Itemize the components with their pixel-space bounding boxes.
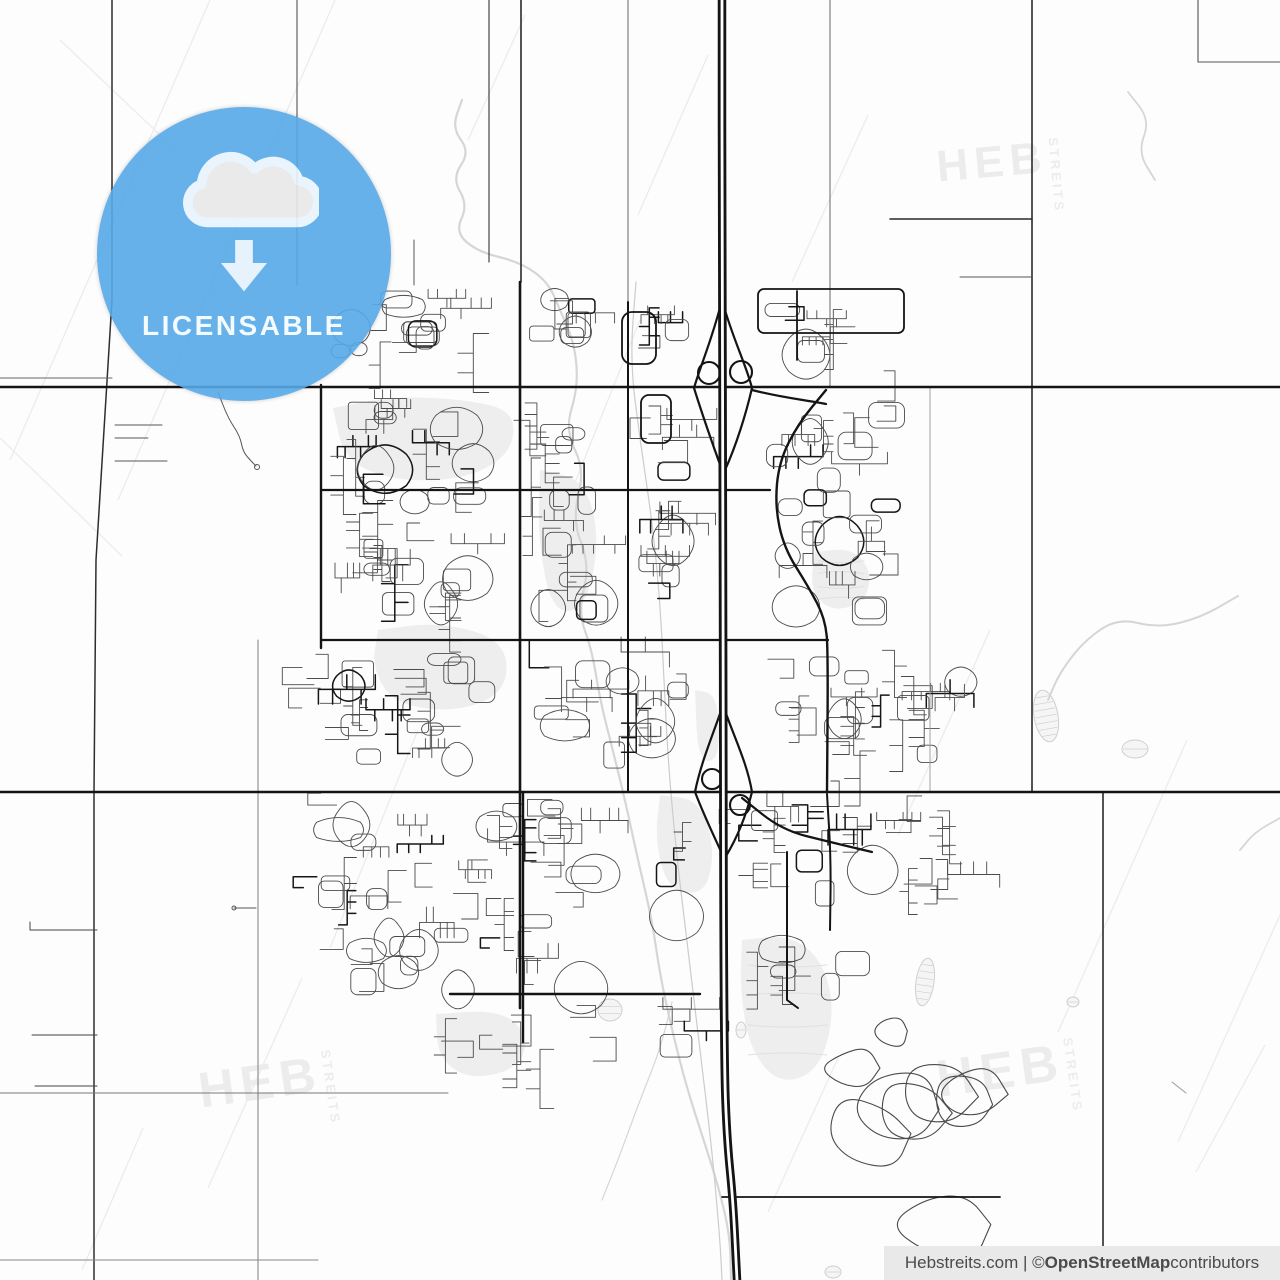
ponds-layer	[598, 688, 1148, 1278]
parks-layer	[333, 398, 869, 1080]
cloud-icon	[188, 157, 318, 223]
attribution-suffix: contributors	[1170, 1253, 1259, 1273]
licensable-badge[interactable]: LICENSABLE	[97, 107, 391, 401]
attribution-bar: Hebstreits.com | © OpenStreetMap contrib…	[884, 1246, 1280, 1280]
badge-label: LICENSABLE	[97, 310, 391, 342]
attribution-source: Hebstreits.com | ©	[905, 1253, 1045, 1273]
cloud-download-icon	[169, 141, 319, 309]
download-arrow-icon	[221, 240, 267, 291]
map-screenshot: HEB STREITS HEB STREITS HEB STREITS LICE…	[0, 0, 1280, 1280]
map-dots-layer	[232, 465, 260, 911]
attribution-brand: OpenStreetMap	[1045, 1253, 1171, 1273]
